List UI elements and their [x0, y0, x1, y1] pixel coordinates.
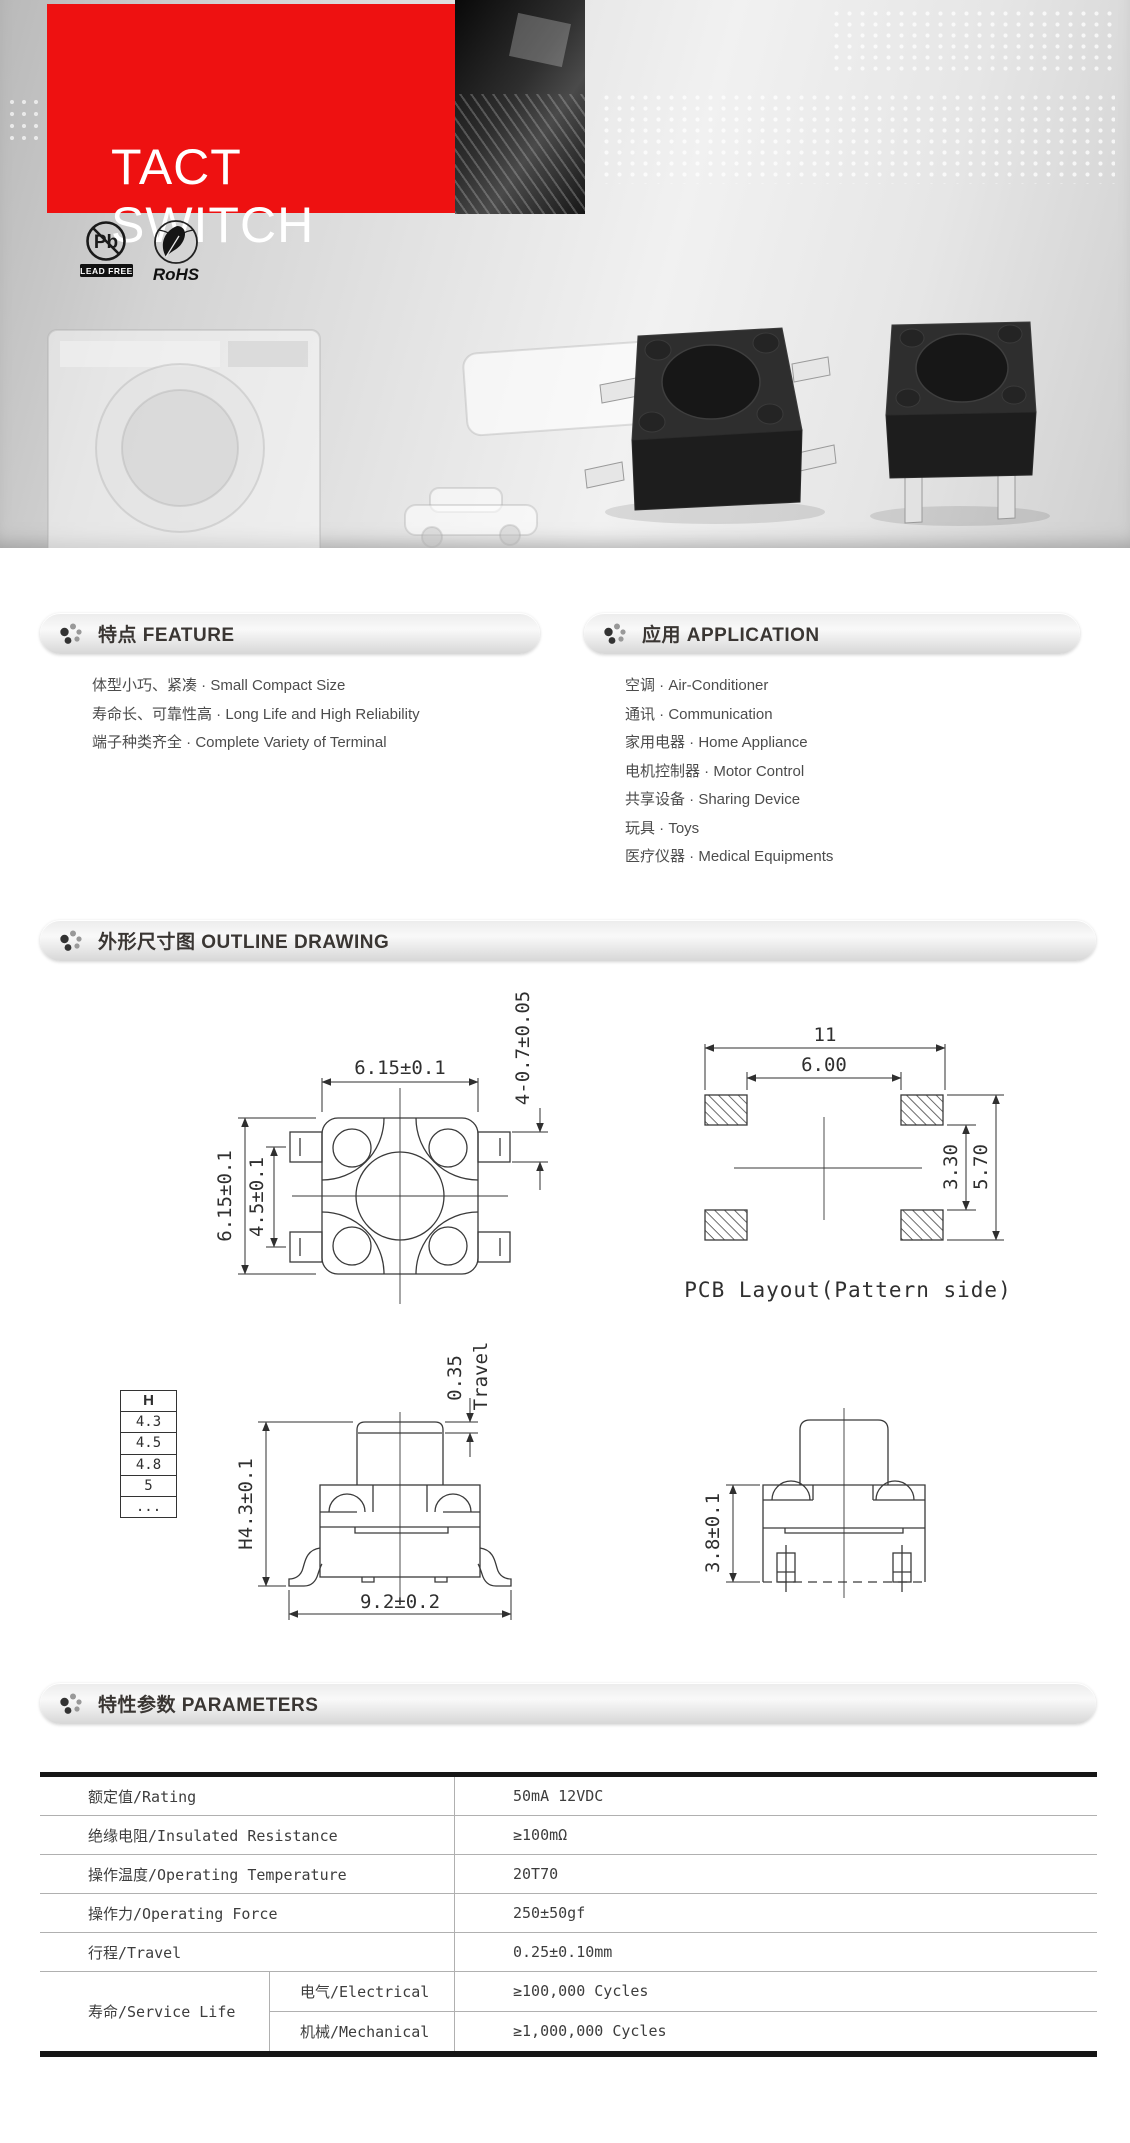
table-row: 操作温度/Operating Temperature 20T70 [40, 1855, 1097, 1894]
param-value: 250±50gf [455, 1894, 1097, 1932]
parameters-table: 额定值/Rating 50mA 12VDC 绝缘电阻/Insulated Res… [40, 1772, 1097, 2057]
param-value: 20T70 [455, 1855, 1097, 1893]
application-section-header: 应用 APPLICATION [584, 613, 1080, 654]
dim-front-width: 9.2±0.2 [360, 1591, 440, 1613]
front-view-dimensions [258, 1398, 511, 1620]
table-row: 行程/Travel 0.25±0.10mm [40, 1933, 1097, 1972]
h-table-row: 5 [121, 1475, 176, 1496]
param-label: 绝缘电阻/Insulated Resistance [40, 1816, 455, 1854]
table-row: 操作力/Operating Force 250±50gf [40, 1894, 1097, 1933]
dots-icon [602, 622, 628, 646]
dots-icon [58, 929, 84, 953]
parameters-section-header: 特性参数 PARAMETERS [40, 1683, 1096, 1724]
dim-pcb-inner-h: 3.30 [940, 1144, 962, 1190]
pcb-dimensions [705, 1044, 1004, 1240]
outline-drawings: 6.15±0.1 6.15±0.1 4.5±0.1 4-0.7±0.05 11 [0, 980, 1130, 1670]
title-banner: TACT SWITCH [47, 4, 455, 213]
dot-pattern [600, 92, 1115, 184]
feature-item: 寿命长、可靠性高 · Long Life and High Reliabilit… [92, 701, 420, 730]
pcb-layout-drawing [705, 1095, 943, 1240]
dim-pcb-inner-w: 6.00 [801, 1054, 847, 1076]
param-value: ≥1,000,000 Cycles [455, 2012, 1097, 2052]
feature-item: 体型小巧、紧凑 · Small Compact Size [92, 672, 420, 701]
parameters-title: 特性参数 PARAMETERS [98, 1690, 318, 1717]
dots-icon [58, 622, 84, 646]
dot-pattern [830, 8, 1115, 74]
dim-top-width: 6.15±0.1 [354, 1057, 446, 1079]
application-item: 家用电器 · Home Appliance [625, 729, 833, 758]
dim-pin-width: 4-0.7±0.05 [512, 991, 534, 1105]
param-label: 操作温度/Operating Temperature [40, 1855, 455, 1893]
application-item: 通讯 · Communication [625, 701, 833, 730]
param-value: 0.25±0.10mm [455, 1933, 1097, 1971]
rohs-icon: RoHS [153, 221, 200, 284]
h-table-row: 4.3 [121, 1411, 176, 1432]
dot-pattern [6, 96, 46, 142]
param-label: 寿命/Service Life [40, 1972, 270, 2051]
dim-travel-label: Travel [470, 1342, 492, 1411]
outline-title: 外形尺寸图 OUTLINE DRAWING [98, 927, 389, 954]
application-item: 玩具 · Toys [625, 815, 833, 844]
outline-section-header: 外形尺寸图 OUTLINE DRAWING [40, 920, 1096, 961]
param-label: 额定值/Rating [40, 1777, 455, 1815]
feature-section-header: 特点 FEATURE [40, 613, 540, 654]
param-label: 行程/Travel [40, 1933, 455, 1971]
h-table-header: H [121, 1391, 176, 1411]
dots-icon [58, 1692, 84, 1716]
param-value: ≥100,000 Cycles [455, 1972, 1097, 2012]
h-table-row: 4.5 [121, 1432, 176, 1453]
table-row: 绝缘电阻/Insulated Resistance ≥100mΩ [40, 1816, 1097, 1855]
param-label: 操作力/Operating Force [40, 1894, 455, 1932]
side-view-drawing [763, 1408, 925, 1598]
application-item: 医疗仪器 · Medical Equipments [625, 843, 833, 872]
application-item: 空调 · Air-Conditioner [625, 672, 833, 701]
h-table-row: 4.8 [121, 1454, 176, 1475]
height-option-table: H 4.3 4.5 4.8 5 ... [120, 1390, 177, 1518]
feature-title: 特点 FEATURE [98, 620, 235, 647]
application-title: 应用 APPLICATION [642, 620, 820, 647]
dim-pin-span: 4.5±0.1 [246, 1157, 268, 1237]
product-photo-dip-switch [870, 322, 1050, 526]
param-value: 50mA 12VDC [455, 1777, 1097, 1815]
param-sublabel: 机械/Mechanical [270, 2012, 455, 2052]
param-value: ≥100mΩ [455, 1816, 1097, 1854]
dim-front-height: H4.3±0.1 [235, 1458, 257, 1550]
svg-text:RoHS: RoHS [153, 265, 200, 284]
dim-travel-value: 0.35 [444, 1355, 466, 1401]
dim-top-height: 6.15±0.1 [214, 1150, 236, 1242]
product-photos [560, 290, 1080, 540]
lead-free-icon: Pb LEAD FREE [80, 223, 133, 278]
application-item: 共享设备 · Sharing Device [625, 786, 833, 815]
table-row: 额定值/Rating 50mA 12VDC [40, 1777, 1097, 1816]
dim-pcb-outer-h: 5.70 [970, 1144, 992, 1190]
hero-section: TACT SWITCH Pb LEAD FREE RoHS [0, 0, 1130, 548]
application-item: 电机控制器 · Motor Control [625, 758, 833, 787]
top-view-dimensions [238, 1078, 548, 1274]
top-view-drawing [290, 1088, 510, 1304]
datasheet-page: TACT SWITCH Pb LEAD FREE RoHS [0, 0, 1130, 2143]
feature-list: 体型小巧、紧凑 · Small Compact Size 寿命长、可靠性高 · … [92, 672, 420, 758]
dim-pcb-outer-w: 11 [814, 1024, 837, 1046]
dim-side-height: 3.8±0.1 [702, 1493, 724, 1573]
svg-text:LEAD FREE: LEAD FREE [80, 266, 133, 276]
circuit-photo [455, 0, 585, 214]
h-table-row: ... [121, 1496, 176, 1517]
feature-item: 端子种类齐全 · Complete Variety of Terminal [92, 729, 420, 758]
pcb-caption: PCB Layout(Pattern side) [684, 1278, 1011, 1302]
param-sublabel: 电气/Electrical [270, 1972, 455, 2012]
service-life-rows: 寿命/Service Life 电气/Electrical ≥100,000 C… [40, 1972, 1097, 2051]
side-view-dimensions [726, 1485, 760, 1582]
toy-car-image [405, 488, 537, 547]
product-photo-smd-switch [585, 328, 836, 524]
front-view-drawing [289, 1412, 511, 1598]
certification-badges: Pb LEAD FREE RoHS [76, 214, 216, 290]
application-list: 空调 · Air-Conditioner 通讯 · Communication … [625, 672, 833, 872]
